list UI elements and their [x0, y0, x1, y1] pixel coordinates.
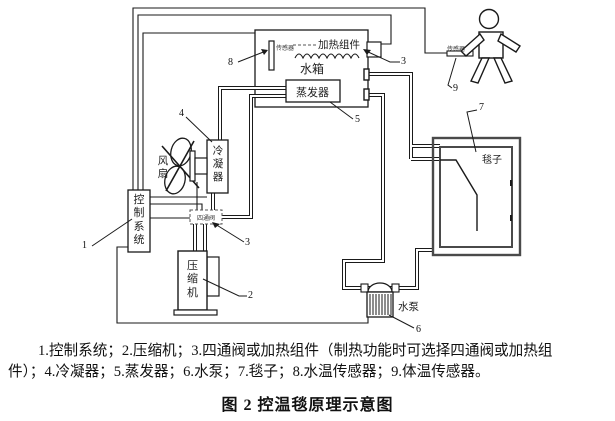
human-leg-left	[471, 58, 489, 83]
pump-flange-left	[361, 284, 368, 292]
tank-stub-lower	[364, 89, 369, 100]
compressor-base	[174, 310, 217, 315]
human-figure	[461, 10, 520, 84]
caption-line-1: 1.控制系统；2.压缩机；3.四通阀或加热组件（制热功能时可选择四通阀或加热组	[8, 341, 608, 362]
pipe-tank-blanket-supply	[368, 74, 411, 159]
blanket-group	[433, 138, 520, 255]
pump-flange-right	[392, 284, 399, 292]
label-blanket: 毯子	[482, 151, 502, 166]
schematic-canvas	[0, 0, 615, 340]
tank-stub-upper	[364, 69, 369, 80]
label-water-temp-sensor: 传感器	[276, 43, 294, 52]
pipe-core	[222, 96, 286, 217]
callout-6: 6	[416, 324, 421, 335]
label-evaporator: 蒸发器	[296, 84, 329, 100]
callout-8: 8	[228, 57, 233, 68]
label-fan: 风扇	[157, 156, 169, 182]
pump-dome	[368, 283, 392, 292]
fan-hub-bar	[190, 151, 195, 181]
wire-to-pump	[117, 247, 368, 323]
callout-4: 4	[179, 108, 184, 119]
pipe-evaporator-valve	[222, 96, 286, 217]
label-condenser: 冷凝器	[212, 146, 224, 184]
compressor-side-box	[207, 257, 219, 296]
label-four-way-valve: 四通阀	[197, 213, 215, 222]
callout-1: 1	[82, 240, 87, 251]
pipe-blanket-return-pump	[382, 250, 433, 288]
callout-2: 2	[248, 290, 253, 301]
leader-3-valve	[215, 224, 244, 242]
human-head	[480, 10, 499, 29]
label-compressor: 压缩机	[186, 260, 199, 300]
figure-title: 图 2 控温毯原理示意图	[0, 391, 615, 415]
water-temp-sensor-bar	[269, 41, 274, 70]
pipe-core	[368, 74, 411, 159]
label-control-system: 控制系统	[132, 194, 146, 248]
label-heating-module: 加热组件	[316, 37, 362, 52]
caption-line-2: 件）；4.冷凝器；5.蒸发器；6.水泵；7.毯子；8.水温传感器；9.体温传感器…	[8, 362, 608, 383]
leader-1	[92, 219, 132, 246]
human-leg-right	[494, 58, 512, 83]
pipe-core	[382, 250, 433, 288]
blanket-internal-tube	[440, 160, 477, 231]
fan-motor	[195, 158, 207, 174]
leader-6	[389, 315, 414, 328]
callout-7: 7	[479, 102, 484, 113]
callout-3-valve: 3	[245, 237, 250, 248]
pipe-tank-pump	[344, 95, 383, 288]
callout-9: 9	[453, 83, 458, 94]
label-water-tank: 水箱	[300, 60, 324, 77]
callout-5: 5	[355, 114, 360, 125]
leader-7	[467, 110, 477, 152]
figure-caption: 1.控制系统；2.压缩机；3.四通阀或加热组件（制热功能时可选择四通阀或加热组 …	[8, 341, 608, 383]
figure-temperature-control-blanket: 控制系统 风扇 冷凝器 压缩机 水箱 加热组件 蒸发器 四通阀 毯子 水泵 传感…	[0, 0, 615, 421]
label-body-temp-sensor: 传感器	[447, 44, 465, 53]
leader-4	[186, 117, 212, 142]
label-water-pump: 水泵	[398, 299, 419, 314]
water-pump-group	[361, 283, 399, 317]
human-torso	[479, 32, 503, 58]
pump-body	[367, 292, 393, 317]
wire-to-valve-top	[150, 204, 202, 211]
callout-3-heater: 3	[401, 56, 406, 67]
